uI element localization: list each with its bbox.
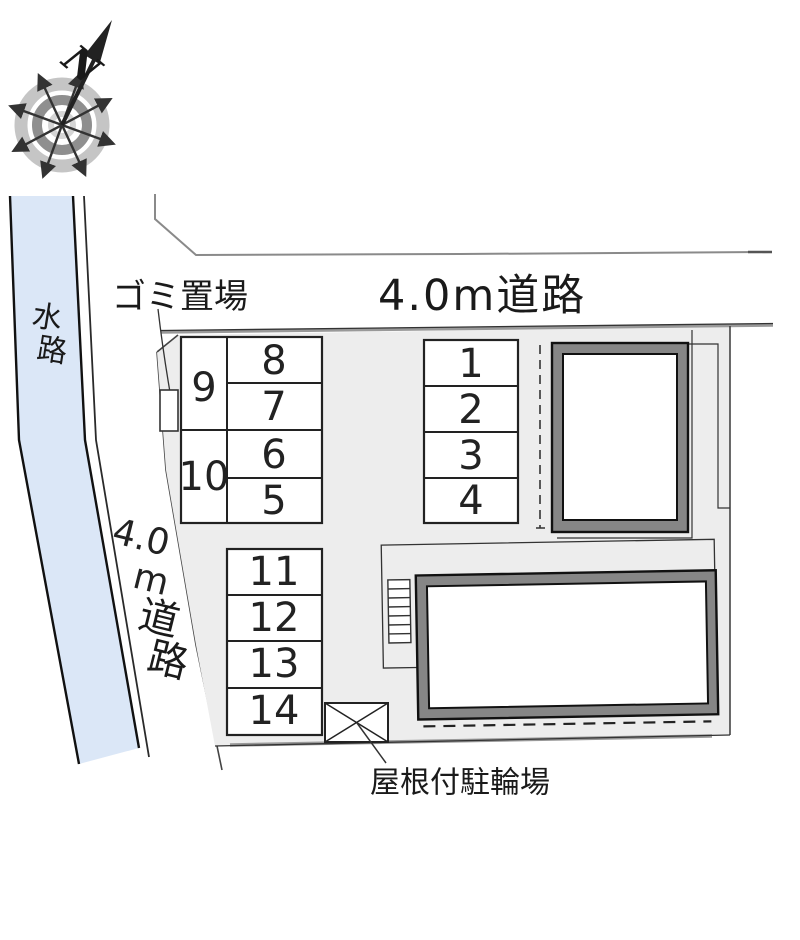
- road-top-label: 4.0m道路: [378, 271, 586, 321]
- compass-rose-icon: N: [11, 20, 112, 176]
- parking-space-10: 10: [179, 454, 230, 500]
- road-top-far-edge-line: [155, 194, 772, 255]
- garbage-area-label: ゴミ置場: [112, 277, 248, 317]
- site-plan: N 水 路 4.0 m 道 路 4.0m道路 ゴミ置場: [0, 0, 800, 940]
- parking-space-2: 2: [458, 387, 483, 433]
- stairs-icon: [388, 580, 411, 643]
- bike-shed-label: 屋根付駐輪場: [370, 766, 550, 801]
- parking-space-13: 13: [249, 641, 300, 687]
- building-2-interior: [427, 581, 708, 708]
- building-1-interior: [563, 354, 677, 520]
- parking-space-12: 12: [249, 595, 300, 641]
- parking-block-a: 9 10 8 7 6 5: [179, 337, 322, 524]
- parking-space-4: 4: [458, 478, 483, 524]
- parking-space-6: 6: [261, 432, 286, 478]
- parking-block-c: 11 12 13 14: [227, 549, 322, 735]
- parking-space-11: 11: [249, 549, 300, 595]
- parking-space-1: 1: [458, 341, 483, 387]
- parking-space-7: 7: [261, 384, 286, 430]
- parking-space-8: 8: [261, 338, 286, 384]
- waterway-label: 路: [34, 331, 69, 370]
- parking-space-3: 3: [458, 433, 483, 479]
- parking-space-14: 14: [249, 688, 300, 734]
- parking-space-9: 9: [191, 365, 216, 411]
- parking-block-b: 1 2 3 4: [424, 340, 518, 524]
- garbage-box: [160, 390, 178, 431]
- site-plan-canvas: N 水 路 4.0 m 道 路 4.0m道路 ゴミ置場: [0, 0, 800, 940]
- road-left-label: 路: [143, 634, 193, 688]
- parking-space-5: 5: [261, 478, 286, 524]
